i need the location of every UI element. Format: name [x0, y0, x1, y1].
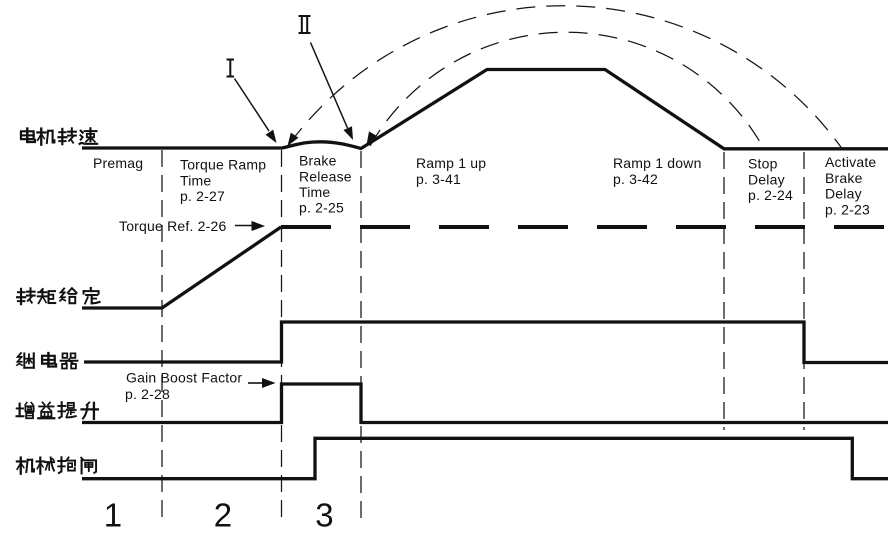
svg-text:Activate: Activate	[825, 154, 876, 170]
svg-text:Ramp 1 up: Ramp 1 up	[416, 155, 486, 171]
svg-text:Delay: Delay	[748, 171, 785, 187]
svg-text:Time: Time	[180, 172, 211, 188]
svg-text:Brake: Brake	[825, 170, 863, 186]
svg-text:Torque Ramp: Torque Ramp	[180, 157, 266, 173]
svg-text:Gain Boost Factor: Gain Boost Factor	[126, 370, 242, 386]
svg-text:Torque Ref. 2-26: Torque Ref. 2-26	[119, 218, 226, 234]
svg-text:Delay: Delay	[825, 186, 862, 202]
svg-text:3: 3	[315, 497, 334, 533]
svg-text:p. 2-27: p. 2-27	[180, 188, 225, 204]
svg-text:p. 2-24: p. 2-24	[748, 187, 793, 203]
svg-text:1: 1	[104, 497, 123, 533]
svg-text:Time: Time	[299, 184, 330, 200]
svg-text:p. 3-42: p. 3-42	[613, 171, 658, 187]
svg-text:p. 2-28: p. 2-28	[125, 386, 170, 402]
svg-text:p. 2-23: p. 2-23	[825, 201, 870, 217]
svg-text:2: 2	[214, 497, 233, 533]
svg-text:Premag: Premag	[93, 155, 143, 171]
svg-text:Release: Release	[299, 168, 352, 184]
svg-text:p. 2-25: p. 2-25	[299, 200, 344, 216]
svg-text:Ramp 1 down: Ramp 1 down	[613, 155, 702, 171]
svg-text:Stop: Stop	[748, 156, 778, 172]
svg-text:p. 3-41: p. 3-41	[416, 171, 461, 187]
svg-text:Brake: Brake	[299, 153, 337, 169]
